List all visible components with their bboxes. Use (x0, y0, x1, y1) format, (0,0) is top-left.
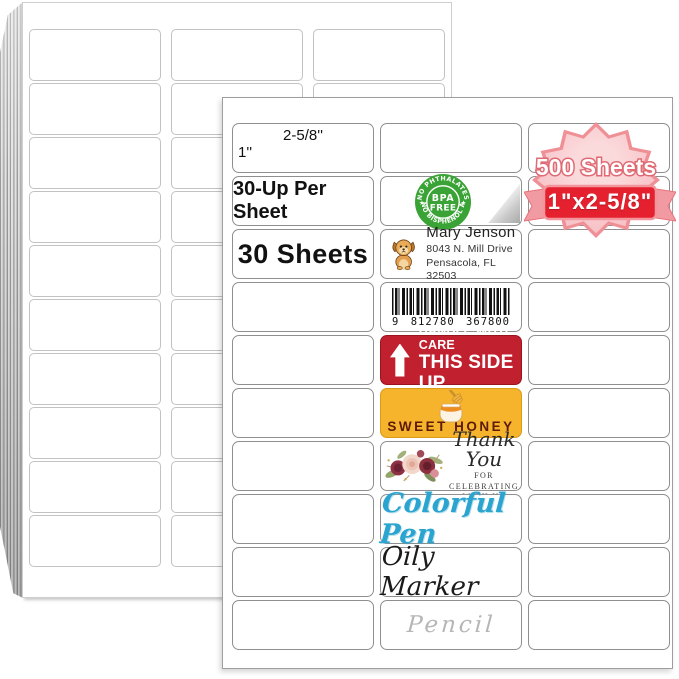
blank-label (232, 547, 374, 597)
ribbon-banner: 1"x2-5/8" (524, 182, 676, 224)
thank-you-script: Thank You (447, 429, 521, 469)
arrow-up-icon (390, 344, 410, 377)
badge-size-text: 1"x2-5/8" (524, 182, 676, 224)
sheet-stack-edge (0, 2, 23, 598)
blank-label (232, 388, 374, 438)
blank-label (29, 191, 161, 243)
blank-label (232, 600, 374, 650)
marker-text: Oily Marker (379, 542, 522, 602)
svg-text:500 Sheets: 500 Sheets (536, 154, 656, 180)
bpa-center-line1: BPA (432, 193, 455, 204)
bpa-star-right-icon: ★ (461, 199, 467, 207)
blank-label (528, 335, 670, 385)
blank-label (528, 494, 670, 544)
blank-label (380, 123, 522, 173)
blank-label (171, 29, 303, 81)
dimension-label: 2-5/8'' 1'' (232, 123, 374, 173)
blank-label (29, 407, 161, 459)
oily-marker-label: Oily Marker (380, 547, 522, 597)
per-sheet-label: 30-Up Per Sheet (232, 176, 374, 226)
blank-label (29, 461, 161, 513)
flowers-icon (383, 445, 445, 487)
thank-you-label: Thank You FOR CELEBRATING WITH US (380, 441, 522, 491)
peel-corner-icon (487, 183, 520, 223)
blank-label (232, 441, 374, 491)
product-image: 2-5/8'' 1'' 30-Up Per Sheet NO PHTHALATE… (0, 0, 679, 679)
blank-label (29, 353, 161, 405)
handle-line1: HANDLE WITH CARE (419, 325, 521, 353)
dog-icon (388, 235, 419, 273)
pencil-label: Pencil (380, 600, 522, 650)
blank-label (29, 29, 161, 81)
blank-label (29, 515, 161, 567)
bpa-star-left-icon: ★ (419, 199, 425, 207)
colorful-pen-label: Colorful Pen (380, 494, 522, 544)
blank-label (528, 547, 670, 597)
blank-label (232, 494, 374, 544)
address-label: Mary Jenson 8043 N. Mill Drive Pensacola… (380, 229, 522, 279)
blank-label (232, 282, 374, 332)
sheet-count-label: 30 Sheets (232, 229, 374, 279)
address-name: Mary Jenson (426, 224, 518, 241)
blank-label (528, 441, 670, 491)
height-dimension: 1'' (238, 144, 252, 161)
blank-label (29, 83, 161, 135)
blank-label (528, 600, 670, 650)
pencil-text: Pencil (406, 612, 496, 638)
blank-label (528, 282, 670, 332)
handle-with-care-label: HANDLE WITH CARE THIS SIDE UP (380, 335, 522, 385)
bpa-label: NO PHTHALATES NO BISPHENOL A ★ ★ BPA FRE… (380, 176, 522, 226)
barcode-digit-1: 9 (392, 316, 399, 328)
width-dimension: 2-5/8'' (233, 127, 373, 144)
address-street: 8043 N. Mill Drive (426, 243, 518, 257)
blank-label (29, 137, 161, 189)
blank-label (29, 299, 161, 351)
address-city: Pensacola, FL 32503 (426, 257, 518, 284)
bpa-seal-icon: NO PHTHALATES NO BISPHENOL A ★ ★ BPA FRE… (415, 174, 471, 230)
blank-label (313, 29, 445, 81)
pen-text: Colorful Pen (379, 488, 523, 550)
honey-jar-icon (429, 390, 473, 423)
blank-label (528, 388, 670, 438)
barcode-bars-icon (392, 288, 510, 315)
bpa-center-line2: FREE (430, 204, 457, 214)
blank-label (232, 335, 374, 385)
blank-label (29, 245, 161, 297)
